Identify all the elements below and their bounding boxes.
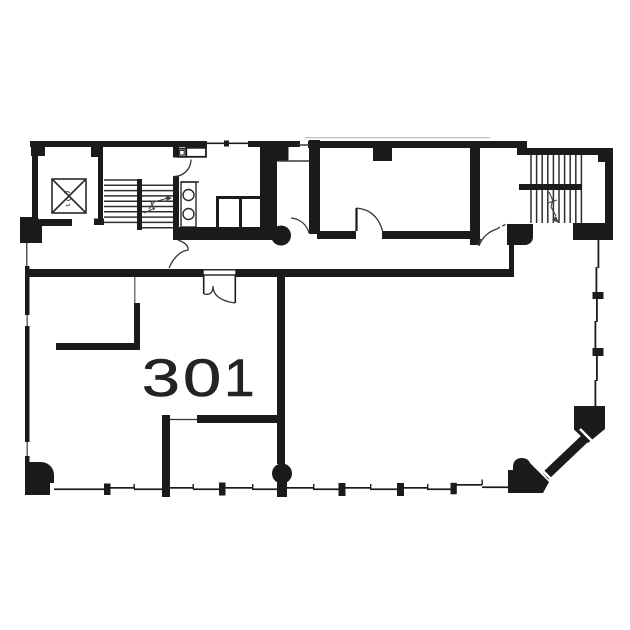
svg-text:3: 3 bbox=[142, 349, 180, 407]
svg-text:0: 0 bbox=[183, 349, 221, 407]
svg-text:1: 1 bbox=[224, 349, 255, 408]
